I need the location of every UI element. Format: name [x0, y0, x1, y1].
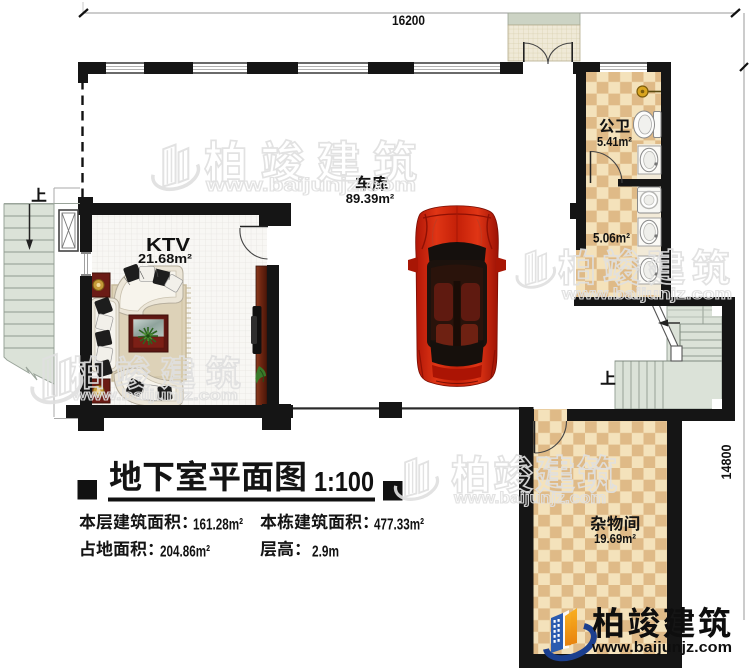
svg-text:204.86m²: 204.86m²	[160, 544, 210, 561]
svg-text:16200: 16200	[392, 13, 425, 28]
svg-text:www.baijunjz.com: www.baijunjz.com	[591, 640, 732, 656]
svg-text:1:100: 1:100	[314, 466, 374, 497]
svg-text:477.33m²: 477.33m²	[374, 517, 424, 534]
svg-text:161.28m²: 161.28m²	[193, 517, 243, 534]
svg-text:5.41m²: 5.41m²	[597, 134, 633, 149]
svg-text:5.06m²: 5.06m²	[593, 231, 630, 246]
svg-text:21.68m²: 21.68m²	[138, 252, 192, 266]
svg-text:www.baijunjz.com: www.baijunjz.com	[71, 388, 238, 404]
svg-text:14800: 14800	[719, 445, 734, 480]
svg-text:www.baijunjz.com: www.baijunjz.com	[561, 286, 732, 303]
svg-text:www.baijunjz.com: www.baijunjz.com	[205, 175, 416, 195]
svg-text:19.69m²: 19.69m²	[594, 531, 637, 546]
svg-text:www.baijunjz.com: www.baijunjz.com	[453, 490, 606, 507]
svg-text:2.9m: 2.9m	[312, 544, 339, 561]
